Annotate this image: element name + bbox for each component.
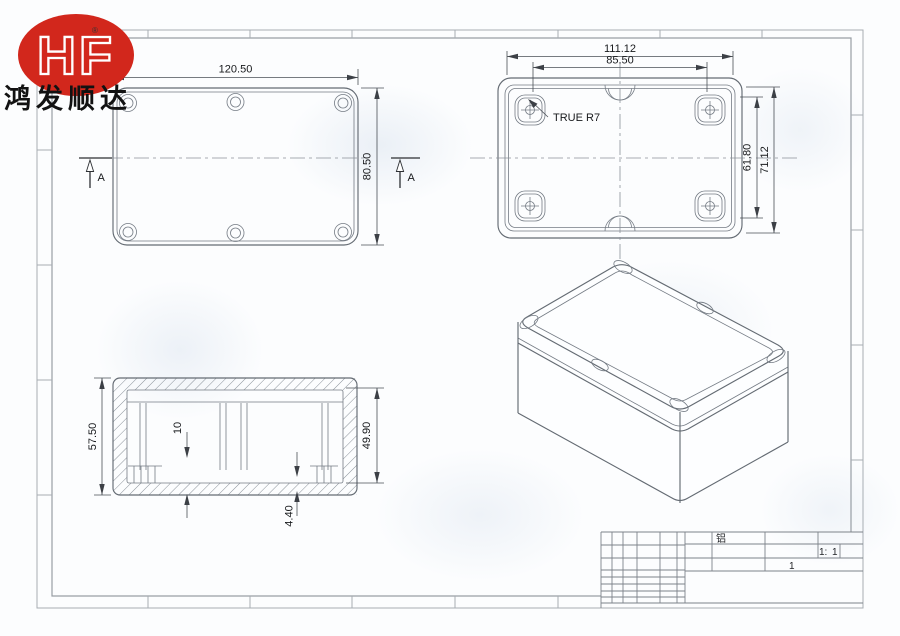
radius-callout: TRUE R7 xyxy=(528,99,600,124)
title-block: 铝 1: 1 1 xyxy=(601,532,863,608)
sheet-number: 1 xyxy=(789,561,795,572)
drawing-frame xyxy=(37,30,863,608)
isometric-view xyxy=(518,258,788,503)
svg-text:TRUE R7: TRUE R7 xyxy=(553,112,600,124)
svg-text:85.50: 85.50 xyxy=(606,55,634,67)
section-marker-left: A xyxy=(79,158,112,188)
svg-text:120.50: 120.50 xyxy=(219,64,253,76)
section-marker-right: A xyxy=(391,158,420,188)
svg-text:10: 10 xyxy=(172,422,184,434)
svg-text:57.50: 57.50 xyxy=(87,423,99,451)
engineering-drawing-sheet: A A 120.50 xyxy=(0,0,900,636)
logo-text: HF xyxy=(37,26,115,86)
scale-value: 1 xyxy=(832,547,838,558)
section-view: 57.50 49.90 10 xyxy=(87,378,384,527)
drawing-canvas: A A 120.50 xyxy=(0,0,900,636)
dimension-section-boss-offset: 10 xyxy=(172,422,190,518)
dimension-lid-width: 120.50 xyxy=(113,64,358,86)
svg-text:4.40: 4.40 xyxy=(284,505,296,526)
section-label-left: A xyxy=(98,172,106,184)
scale-prefix: 1: xyxy=(819,547,827,558)
section-label-right: A xyxy=(408,172,416,184)
dimension-section-overall-height: 57.50 xyxy=(87,378,111,495)
material-value: 铝 xyxy=(716,533,726,545)
registered-mark: ® xyxy=(92,26,98,35)
company-name: 鸿发顺达 xyxy=(4,83,132,114)
dimension-lid-height: 80.50 xyxy=(361,88,384,245)
svg-text:71.12: 71.12 xyxy=(759,146,771,174)
svg-text:80.50: 80.50 xyxy=(362,153,374,181)
section-ribs xyxy=(128,403,338,483)
svg-text:61.80: 61.80 xyxy=(742,144,754,172)
base-plan-view: TRUE R7 111.12 85.50 xyxy=(470,43,800,261)
lid-screw-holes xyxy=(120,94,352,242)
svg-text:111.12: 111.12 xyxy=(604,43,636,55)
svg-text:49.90: 49.90 xyxy=(361,422,373,450)
